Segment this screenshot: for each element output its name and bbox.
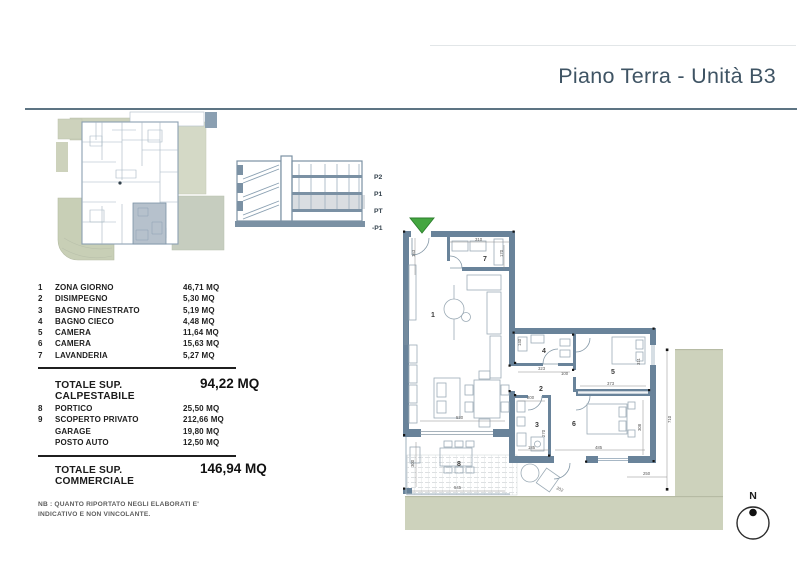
disclaimer-note: NB : QUANTO RIPORTATO NEGLI ELABORATI E'…: [38, 500, 234, 520]
dimension-label: 170: [499, 249, 504, 257]
room-number-label: 7: [483, 256, 487, 263]
row-label: BAGNO CIECO: [55, 316, 183, 327]
wardrobe-band: [578, 391, 648, 393]
row-value: 25,50 MQ: [183, 403, 243, 414]
floor-plan: 1 7 4 5 2 3 6 8 163 310 170 140 323 100 …: [390, 205, 730, 535]
area-table: 1 ZONA GIORNO 46,71 MQ 2 DISIMPEGNO 5,30…: [38, 282, 244, 361]
section-level-labels: P2 P1 PT -P1: [372, 174, 384, 232]
compass-dot-icon: [749, 509, 757, 517]
room-number-label: 1: [431, 312, 435, 319]
total-value: 146,94 MQ: [200, 461, 267, 476]
table-row: 3 BAGNO FINESTRATO 5,19 MQ: [38, 305, 244, 316]
dimension-label: 250: [643, 471, 651, 476]
table-row: 1 ZONA GIORNO 46,71 MQ: [38, 282, 244, 293]
row-number: 6: [38, 338, 55, 349]
corner-markers: [403, 231, 668, 491]
row-value: 212,66 MQ: [183, 414, 243, 425]
table-row: POSTO AUTO 12,50 MQ: [38, 437, 244, 448]
room-number-label: 6: [572, 421, 576, 428]
room-number-label: 3: [535, 422, 539, 429]
row-value: 5,27 MQ: [183, 350, 243, 361]
plan-green-areas: [405, 349, 723, 530]
level-label: PT: [374, 208, 384, 215]
dimension-label: 163: [411, 249, 416, 257]
site-key-plan: [56, 110, 228, 268]
row-label: GARAGE: [55, 426, 183, 437]
table-row: 4 BAGNO CIECO 4,48 MQ: [38, 316, 244, 327]
portico-floor-hatch: [407, 455, 517, 495]
plan-walls: [403, 231, 656, 494]
dimension-label: 310: [475, 237, 483, 242]
dimension-label: 485: [595, 445, 603, 450]
row-value: 5,19 MQ: [183, 305, 243, 316]
area-table-extra: 8 PORTICO 25,50 MQ 9 SCOPERTO PRIVATO 21…: [38, 403, 244, 448]
table-rule: [38, 455, 236, 457]
table-row: 8 PORTICO 25,50 MQ: [38, 403, 244, 414]
north-indicator: N: [722, 480, 786, 560]
dimension-label: 530: [456, 415, 464, 420]
dimension-label: 200: [527, 395, 535, 400]
page-title: Piano Terra - Unità B3: [380, 64, 776, 89]
row-number: 9: [38, 414, 55, 425]
level-label: -P1: [372, 225, 383, 232]
dimension-label: 373: [607, 381, 615, 386]
room-number-label: 8: [457, 461, 461, 468]
table-row: 6 CAMERA 15,63 MQ: [38, 338, 244, 349]
table-rule: [38, 367, 236, 369]
building-section: P2 P1 PT -P1: [233, 153, 401, 237]
row-number: 4: [38, 316, 55, 327]
row-number: 5: [38, 327, 55, 338]
row-number: 3: [38, 305, 55, 316]
level-label: P2: [374, 174, 383, 181]
row-label: CAMERA: [55, 338, 183, 349]
total-label: TOTALE SUP. CALPESTABILE: [38, 380, 200, 402]
drawing-sheet: Piano Terra - Unità B3: [0, 0, 800, 565]
total-label: TOTALE SUP. COMMERCIALE: [38, 465, 200, 487]
plan-windows: [405, 290, 656, 463]
entrance-arrow-icon: [410, 218, 434, 233]
row-label: BAGNO FINESTRATO: [55, 305, 183, 316]
total-calpestabile-row: TOTALE SUP. CALPESTABILE 94,22 MQ: [38, 376, 268, 402]
row-value: 4,48 MQ: [183, 316, 243, 327]
row-number: 8: [38, 403, 55, 414]
row-value: 12,50 MQ: [183, 437, 243, 448]
total-value: 94,22 MQ: [200, 376, 259, 391]
north-label: N: [749, 490, 757, 502]
row-label: ZONA GIORNO: [55, 282, 183, 293]
room-number-label: 5: [611, 369, 615, 376]
level-label: P1: [374, 191, 383, 198]
dimension-label: 308: [637, 423, 642, 431]
row-label: PORTICO: [55, 403, 183, 414]
room-number-labels: 1 7 4 5 2 3 6 8: [431, 256, 615, 468]
total-commerciale-row: TOTALE SUP. COMMERCIALE 146,94 MQ: [38, 461, 268, 487]
dimension-label: 545: [454, 485, 462, 490]
dimension-label: 185: [528, 445, 536, 450]
row-value: 11,64 MQ: [183, 327, 243, 338]
row-number: 7: [38, 350, 55, 361]
row-label: CAMERA: [55, 327, 183, 338]
row-label: SCOPERTO PRIVATO: [55, 414, 183, 425]
row-label: POSTO AUTO: [55, 437, 183, 448]
dimension-label: 270: [541, 429, 546, 437]
dimension-label: 140: [517, 338, 522, 346]
row-number: 1: [38, 282, 55, 293]
table-row: 7 LAVANDERIA 5,27 MQ: [38, 350, 244, 361]
row-value: 15,63 MQ: [183, 338, 243, 349]
room-number-label: 4: [542, 348, 546, 355]
table-row: 9 SCOPERTO PRIVATO 212,66 MQ: [38, 414, 244, 425]
row-number: 2: [38, 293, 55, 304]
row-number: [38, 426, 55, 437]
dimension-label: 710: [667, 415, 672, 423]
row-value: 19,80 MQ: [183, 426, 243, 437]
dimension-label: 202: [556, 485, 565, 493]
table-row: 5 CAMERA 11,64 MQ: [38, 327, 244, 338]
dimension-label: 100: [561, 371, 569, 376]
row-value: 5,30 MQ: [183, 293, 243, 304]
table-row: 2 DISIMPEGNO 5,30 MQ: [38, 293, 244, 304]
top-rule: [430, 45, 796, 46]
table-row: GARAGE 19,80 MQ: [38, 426, 244, 437]
room-number-label: 2: [539, 386, 543, 393]
row-number: [38, 437, 55, 448]
dimension-label: 300: [410, 459, 415, 467]
row-label: DISIMPEGNO: [55, 293, 183, 304]
row-label: LAVANDERIA: [55, 350, 183, 361]
dimension-label: 311: [636, 358, 641, 365]
section-drawing: [235, 156, 365, 227]
row-value: 46,71 MQ: [183, 282, 243, 293]
dimension-label: 323: [538, 366, 546, 371]
